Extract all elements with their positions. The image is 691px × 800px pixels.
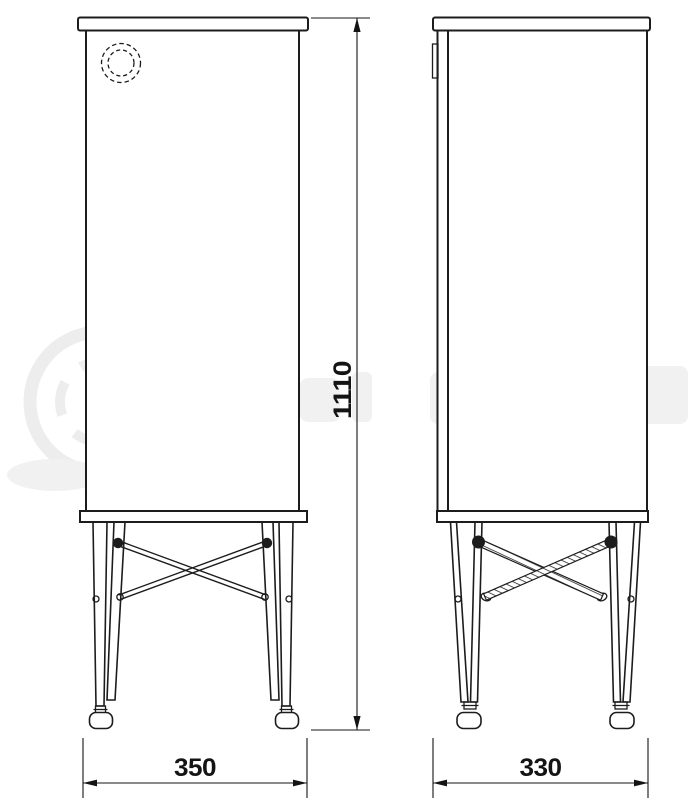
height-dimension-label: 1110 (329, 361, 357, 419)
front-width-dimension-label: 350 (174, 754, 216, 782)
side-view-outer-right-leg (623, 522, 641, 702)
brace-bolt (113, 538, 123, 548)
arrowhead-left (433, 780, 447, 787)
front-top-cap (78, 18, 308, 31)
side-depth-dimension-label: 330 (520, 754, 562, 782)
side-depth-dimension: 330 (433, 738, 648, 798)
arrowhead-down (353, 716, 360, 730)
side-view-feet (457, 702, 634, 729)
side-view-outer-left-leg (451, 522, 469, 702)
side-view (433, 18, 651, 729)
front-view-feet (90, 706, 299, 729)
front-base-plate (80, 511, 307, 522)
front-view-cross-braces (113, 538, 272, 600)
side-body-panel (448, 30, 647, 511)
adjustable-foot-pad (610, 713, 634, 729)
front-body-panel (86, 30, 299, 511)
front-view-front-right-leg (279, 522, 293, 706)
arrowhead-right (634, 780, 648, 787)
arrowhead-up (353, 18, 360, 32)
side-top-cap (433, 18, 650, 31)
front-width-dimension: 350 (83, 738, 307, 798)
front-view-front-left-leg (93, 522, 107, 706)
adjustable-foot-pad (457, 713, 481, 729)
front-view (78, 18, 308, 729)
adjustable-foot-pad (90, 713, 113, 729)
adjustable-foot-pad (276, 713, 299, 729)
side-view-cross-braces (472, 536, 618, 601)
side-view-inner-left-leg (471, 522, 483, 702)
brace-bolt (262, 538, 272, 548)
arrowhead-right (293, 780, 307, 787)
brace-bolt (472, 536, 485, 549)
arrowhead-left (83, 780, 97, 787)
side-view-inner-right-leg (609, 522, 621, 702)
technical-drawing-canvas: 1110 350 330 (0, 0, 691, 800)
side-base-plate (437, 511, 648, 522)
cabinet-dimension-drawing: 1110 350 330 (0, 0, 691, 800)
front-view-rear-left-leg (107, 522, 125, 700)
brace-bolt (605, 536, 618, 549)
side-door-panel-edge (438, 30, 449, 511)
front-view-rear-right-leg (262, 522, 279, 700)
